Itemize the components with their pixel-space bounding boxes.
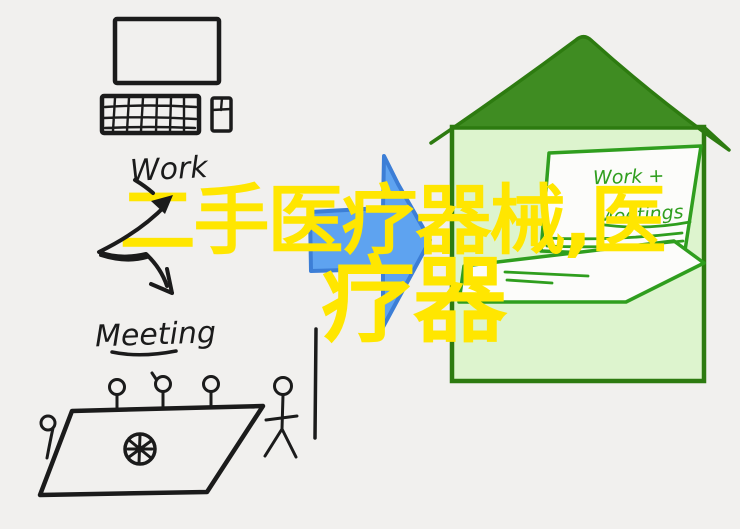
conference-phone-icon <box>125 434 155 464</box>
mouse-detail <box>212 98 231 110</box>
sketch-canvas: Work + Meetings 二手医疗器械,医 疗器 Work Meeting <box>0 0 740 529</box>
person-left <box>41 416 55 458</box>
person-head <box>110 380 125 395</box>
person-head <box>156 377 171 392</box>
arrowhead-up-icon <box>151 195 173 214</box>
standing-person-icon <box>265 378 297 458</box>
keyboard-grid <box>104 98 196 131</box>
meeting-table-sketch <box>40 329 316 495</box>
attendee-heads <box>41 373 219 458</box>
computer-sketch <box>102 19 231 133</box>
person-head <box>204 377 219 392</box>
ink-drawing-layer: Work Meeting <box>0 0 740 529</box>
monitor-icon <box>115 19 219 83</box>
divider-line <box>315 329 316 438</box>
flow-arrow <box>99 180 173 293</box>
meeting-label: Meeting <box>94 315 216 354</box>
